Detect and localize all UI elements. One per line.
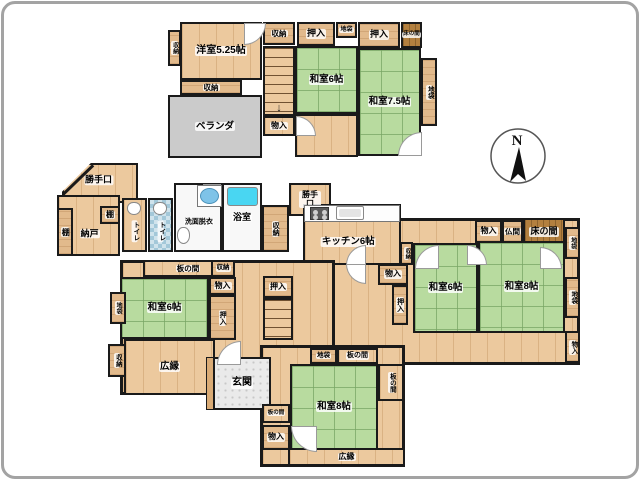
closet-oshiire-stairs: 押入 bbox=[263, 276, 293, 298]
closet-shuno-kitchen: 収納 bbox=[400, 242, 413, 265]
closet-jibukuro-2f-top: 地袋 bbox=[336, 22, 357, 38]
toilet-bowl-2 bbox=[153, 202, 167, 215]
compass-n-label: N bbox=[512, 133, 523, 149]
toilet-bowl-1 bbox=[127, 202, 141, 215]
sink-bowl bbox=[339, 209, 361, 217]
closet-oshiire-stairs-label: 押入 bbox=[269, 283, 287, 291]
room-washitsu-6-west: 和室6帖 bbox=[120, 277, 209, 339]
room-toilet-2-label: トイレ bbox=[157, 220, 164, 242]
storage-nando-label: 納戸 bbox=[80, 229, 100, 238]
room-kitchen-label: キッチン6帖 bbox=[321, 237, 376, 247]
closet-jibukuro-2f-top-label: 地袋 bbox=[339, 27, 353, 33]
floor-itanoma-south-left-label: 板の間 bbox=[267, 411, 286, 417]
room-butsuma-label: 仏間 bbox=[504, 228, 521, 236]
closet-oshiire-center-label: 押入 bbox=[396, 297, 403, 313]
closet-oshiire-center: 押入 bbox=[392, 285, 408, 325]
closet-shuno-2f-top-label: 収納 bbox=[271, 30, 288, 38]
closet-jibukuro-east-top-label: 地袋 bbox=[569, 236, 575, 250]
shelf-tana-left: 棚 bbox=[57, 208, 73, 256]
room-hiroen-south-label: 広縁 bbox=[338, 453, 356, 461]
closet-oshiire-2f-1: 押入 bbox=[297, 22, 335, 46]
closet-shuno-2f-below: 収納 bbox=[180, 80, 242, 95]
room-toilet-1-label: トイレ bbox=[131, 220, 138, 242]
shelf-tana-left-label: 棚 bbox=[61, 227, 69, 237]
alcove-tokonoma-2f-label: 床の間 bbox=[402, 32, 421, 38]
closet-jibukuro-east-top: 地袋 bbox=[565, 227, 580, 259]
wash-basin bbox=[177, 227, 190, 244]
closet-jibukuro-east-mid-label: 地袋 bbox=[569, 290, 576, 305]
closet-shuno-bath: 収納 bbox=[262, 205, 289, 252]
closet-shuno-west-label: 収納 bbox=[114, 353, 121, 368]
floor-plan: ベランダ洋室5.25帖収納収納押入地袋押入床の間和室6帖和室7.5帖地袋↓物入収… bbox=[0, 0, 640, 480]
room-butsuma: 仏間 bbox=[502, 220, 523, 243]
room-washitsu-6-2f-label: 和室6帖 bbox=[309, 75, 345, 85]
balcony-veranda: ベランダ bbox=[168, 95, 262, 158]
closet-monoire-east-bottom-label: 物入 bbox=[569, 340, 576, 355]
closet-jibukuro-2f-right-label: 地袋 bbox=[426, 85, 433, 100]
bathtub bbox=[227, 187, 258, 206]
closet-monoire-east-top: 物入 bbox=[475, 220, 502, 243]
stove bbox=[310, 207, 329, 220]
burner bbox=[313, 215, 318, 220]
closet-jibukuro-east-mid: 地袋 bbox=[565, 277, 580, 318]
closet-monoire-2f-label: 物入 bbox=[270, 122, 288, 130]
closet-monoire-center: 物入 bbox=[378, 264, 408, 285]
closet-shuno-itanoma-label: 収納 bbox=[216, 265, 231, 272]
room-yoshitsu-525-label: 洋室5.25帖 bbox=[195, 46, 246, 57]
closet-oshiire-2f-2: 押入 bbox=[358, 22, 400, 48]
stairs-2f: ↓ bbox=[263, 46, 295, 116]
closet-monoire-2f: 物入 bbox=[263, 116, 295, 136]
closet-monoire-east-bottom: 物入 bbox=[565, 331, 580, 363]
floor-itanoma-south-top-label: 板の間 bbox=[346, 352, 369, 359]
closet-shuno-2f-left-label: 収納 bbox=[171, 41, 177, 55]
kitchen-sink bbox=[336, 206, 364, 220]
room-washitsu-8-east-label: 和室8帖 bbox=[504, 282, 540, 292]
closet-monoire-west-label: 物入 bbox=[214, 282, 232, 290]
closet-shuno-itanoma: 収納 bbox=[211, 260, 235, 277]
closet-shuno-2f-left: 収納 bbox=[168, 30, 181, 66]
room-hiroen-west: 広縁 bbox=[124, 339, 215, 395]
closet-monoire-east-top-label: 物入 bbox=[480, 227, 498, 235]
compass: N bbox=[483, 114, 553, 190]
closet-shuno-2f-top: 収納 bbox=[263, 22, 295, 45]
alcove-tokonoma-1f-label: 床の間 bbox=[529, 227, 558, 236]
closet-monoire-south-label: 物入 bbox=[267, 433, 285, 441]
room-hiroen-west-label: 広縁 bbox=[159, 362, 180, 372]
closet-shuno-bath-label: 収納 bbox=[272, 221, 279, 237]
washer-drum bbox=[200, 188, 219, 204]
room-washitsu-6-east-label: 和室6帖 bbox=[428, 283, 464, 293]
stairs-direction-arrow: ↓ bbox=[276, 102, 282, 114]
room-washitsu-75-2f-label: 和室7.5帖 bbox=[368, 97, 412, 107]
closet-monoire-center-label: 物入 bbox=[384, 270, 402, 278]
floor-itanoma-south-right-label: 板の間 bbox=[388, 372, 395, 394]
washing-machine bbox=[197, 185, 222, 207]
closet-jibukuro-2f-right: 地袋 bbox=[421, 58, 437, 126]
closet-oshiire-west: 押入 bbox=[209, 295, 236, 340]
closet-monoire-west: 物入 bbox=[209, 277, 236, 295]
genkan-step bbox=[206, 357, 214, 410]
stairs-1f bbox=[263, 298, 293, 340]
alcove-tokonoma-2f: 床の間 bbox=[401, 22, 422, 48]
burner bbox=[322, 215, 327, 220]
balcony-veranda-label: ベランダ bbox=[195, 122, 235, 132]
closet-shuno-2f-below-label: 収納 bbox=[203, 84, 220, 92]
entry-katteguchi-1-label: 勝手口 bbox=[84, 175, 113, 184]
room-senmen-datsui-label: 洗面脱衣 bbox=[184, 218, 214, 225]
floor-itanoma-west-label: 板の間 bbox=[176, 265, 201, 273]
closet-jibukuro-south: 地袋 bbox=[310, 348, 337, 364]
floor-itanoma-south-top: 板の間 bbox=[337, 348, 378, 364]
floor-itanoma-south-right: 板の間 bbox=[378, 364, 404, 401]
room-hiroen-south: 広縁 bbox=[288, 448, 405, 466]
closet-oshiire-2f-2-label: 押入 bbox=[369, 30, 389, 39]
entry-genkan-label: 玄関 bbox=[231, 378, 253, 389]
room-washitsu-6-west-label: 和室6帖 bbox=[147, 303, 183, 313]
closet-jibukuro-west-label: 地袋 bbox=[115, 301, 121, 315]
floor-itanoma-south-left: 板の間 bbox=[262, 404, 290, 423]
shelf-tana-top-label: 棚 bbox=[105, 211, 115, 219]
closet-jibukuro-west: 地袋 bbox=[110, 292, 126, 324]
shelf-tana-top: 棚 bbox=[100, 206, 120, 224]
room-washitsu-6-2f: 和室6帖 bbox=[295, 46, 358, 114]
closet-oshiire-west-label: 押入 bbox=[219, 310, 226, 326]
room-washitsu-8-south-label: 和室8帖 bbox=[316, 402, 352, 412]
closet-jibukuro-south-label: 地袋 bbox=[316, 353, 331, 360]
closet-shuno-kitchen-label: 収納 bbox=[404, 247, 410, 260]
closet-monoire-south: 物入 bbox=[262, 425, 290, 450]
room-yokushitsu-label: 浴室 bbox=[232, 213, 252, 222]
closet-oshiire-2f-1-label: 押入 bbox=[306, 29, 326, 38]
